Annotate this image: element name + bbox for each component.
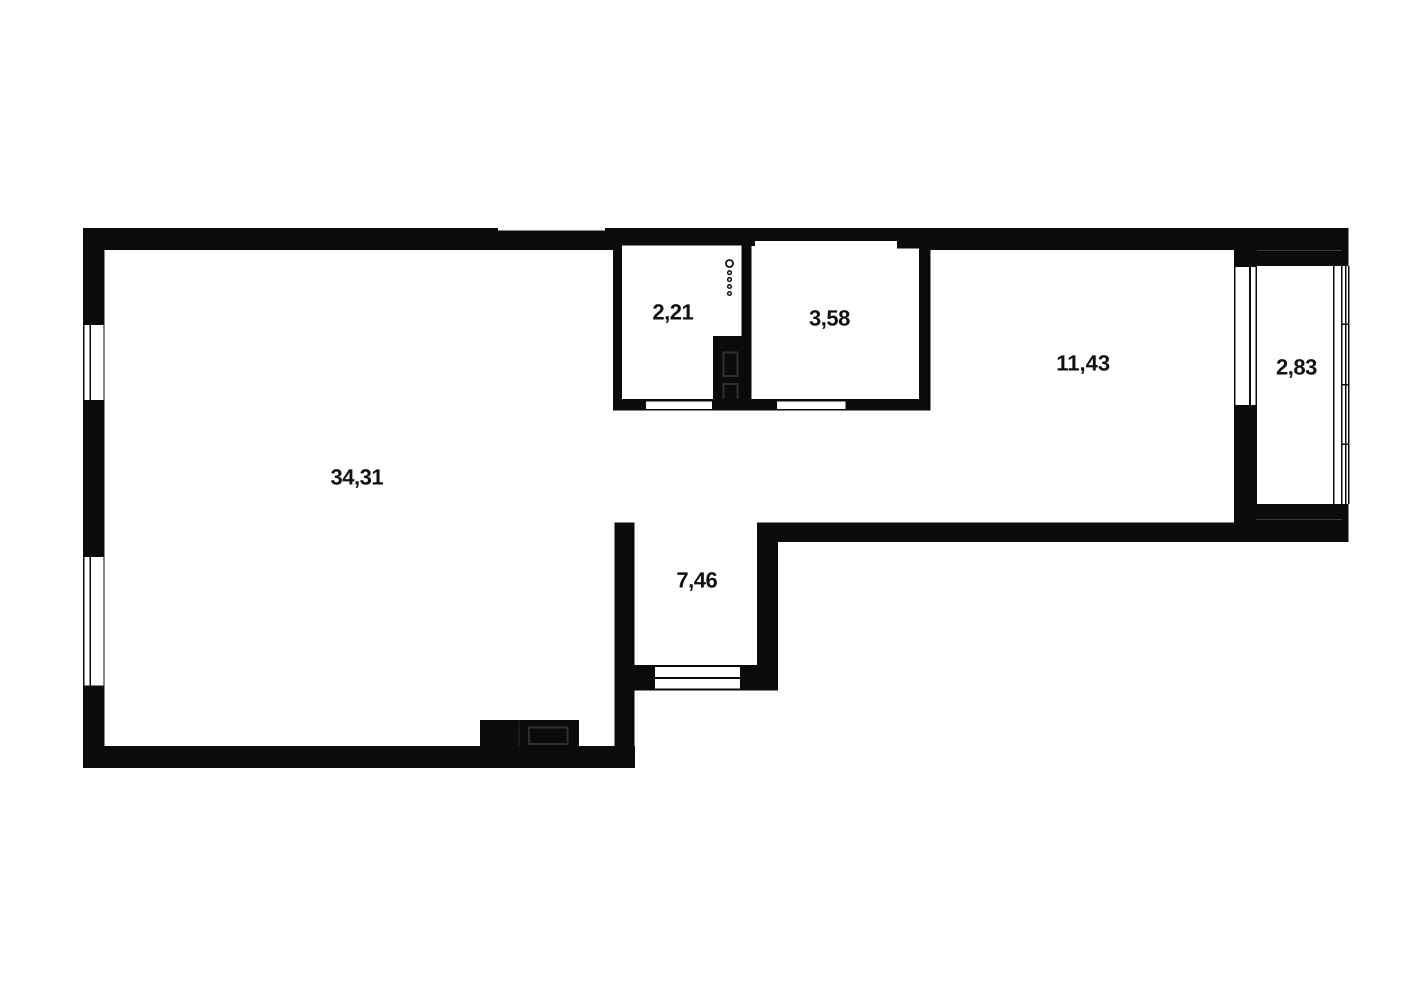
svg-text:2,21: 2,21 (652, 300, 693, 325)
svg-text:7,46: 7,46 (676, 568, 717, 593)
svg-text:3,58: 3,58 (809, 306, 850, 331)
svg-text:34,31: 34,31 (331, 465, 384, 490)
svg-text:11,43: 11,43 (1056, 351, 1110, 376)
svg-text:2,83: 2,83 (1276, 355, 1317, 380)
